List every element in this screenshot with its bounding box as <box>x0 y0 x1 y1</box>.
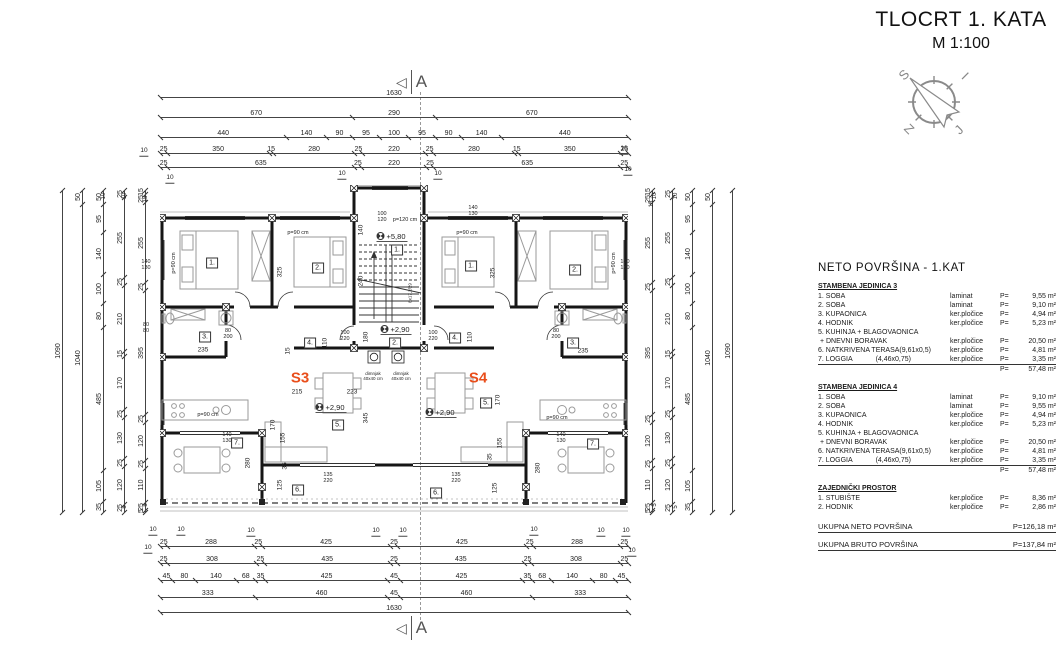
dim-segment: 130 <box>663 418 676 459</box>
flag-label: 10 <box>433 171 442 180</box>
dim-segment: 255 <box>663 198 676 278</box>
dim-segment: 350 <box>167 144 269 157</box>
dim-col-right-2: 252552521015170251302512025 <box>663 190 676 512</box>
dim-segment: 110 <box>643 468 656 503</box>
dim-segment: 105 <box>94 471 107 502</box>
dim-segment: 120 <box>643 423 656 461</box>
section-label: A <box>416 618 427 638</box>
dim-segment: 435 <box>264 554 390 567</box>
table-row: 4. HODNIKker.pločiceP=5,23 m² <box>818 420 1056 429</box>
flag-label: 10 <box>627 548 636 557</box>
dim-segment: 485 <box>94 327 107 470</box>
dim-segment: 460 <box>400 588 532 601</box>
dim-row-top-3: 44014090951009590140440 <box>160 128 628 141</box>
table-section-title: STAMBENA JEDINICA 4 <box>818 384 1056 391</box>
dim-segment: 120 <box>136 423 149 461</box>
dim-segment: 1090 <box>53 190 66 512</box>
section-triangle-icon: ◁ <box>396 75 407 89</box>
dim-row-top-5: 25635252202563525 <box>160 158 628 171</box>
dim-segment: 170 <box>663 357 676 410</box>
dim-segment: 140 <box>683 233 696 274</box>
dim-row-bottom-5: 1630 <box>160 603 628 616</box>
compass-letter-n: S <box>898 66 912 83</box>
dim-segment: 395 <box>136 291 149 415</box>
dim-col-left-4: 252552521015170251302512025 <box>115 190 128 512</box>
dim-segment: 1630 <box>160 88 628 101</box>
dim-segment: 210 <box>663 286 676 352</box>
table-row: + DNEVNI BORAVAKker.pločiceP=20,50 m² <box>818 438 1056 447</box>
dim-col-right-4: 501040 <box>703 190 716 512</box>
table-row: 3. KUPAONICAker.pločiceP=4,94 m² <box>818 310 1056 319</box>
compass-rose: S I Z J <box>898 66 970 138</box>
floor-plan-svg <box>160 185 628 512</box>
flag-label: 10 <box>621 528 630 537</box>
dim-segment: 308 <box>531 554 620 567</box>
dim-segment: 220 <box>362 144 426 157</box>
windows <box>161 187 627 467</box>
dim-segment: 290 <box>352 108 435 121</box>
dim-segment: 140 <box>196 571 236 584</box>
section-bar <box>411 616 412 640</box>
drawing-scale: M 1:100 <box>868 35 1054 53</box>
floor-plan <box>160 185 628 517</box>
dim-segment: 210 <box>115 286 128 352</box>
dim-segment: 395 <box>643 291 656 415</box>
dim-segment: 255 <box>136 203 149 283</box>
flag-label: 10 <box>398 528 407 537</box>
dim-col-left-1: 1090 <box>53 190 66 512</box>
table-row: 5. KUHINJA + BLAGOVAONICA <box>818 328 1056 337</box>
table-row: 4. HODNIKker.pločiceP=5,23 m² <box>818 319 1056 328</box>
table-row: 5. KUHINJA + BLAGOVAONICA <box>818 429 1056 438</box>
flag-label: 10 <box>246 528 255 537</box>
staircase <box>357 245 421 322</box>
dim-segment: 140 <box>94 233 107 274</box>
dim-segment: 440 <box>502 128 628 141</box>
dim-segment: 120 <box>663 466 676 504</box>
dim-segment: 350 <box>519 144 621 157</box>
area-table-heading: NETO POVRŠINA - 1.KAT <box>818 262 1056 274</box>
dim-segment: 1040 <box>703 205 716 512</box>
table-section-title: STAMBENA JEDINICA 3 <box>818 283 1056 290</box>
section-marker-bottom: ◁ A <box>396 616 427 640</box>
table-row: 6. NATKRIVENA TERASA(9,61x0,5)ker.pločic… <box>818 346 1056 355</box>
dim-col-left-2: 501040 <box>73 190 86 512</box>
dim-segment: 288 <box>534 537 621 550</box>
dim-segment: 1040 <box>73 205 86 512</box>
table-section-title: ZAJEDNIČKI PROSTOR <box>818 485 1056 492</box>
flag-label: 10 <box>176 527 185 536</box>
dim-segment: 435 <box>398 554 524 567</box>
table-total-row: UKUPNA NETO POVRŠINAP=126,18 m² <box>818 522 1056 533</box>
dim-segment: 110 <box>136 468 149 503</box>
flag-label: 10 <box>165 175 174 184</box>
table-sum-row: P=57,48 m² <box>818 365 1056 375</box>
table-row: 7. LOGGIA (4,46x0,75)ker.pločiceP=3,35 m… <box>818 456 1056 466</box>
dim-segment: 130 <box>115 418 128 459</box>
dim-segment: 140 <box>462 128 502 141</box>
dim-segment: 425 <box>398 537 526 550</box>
chimneys <box>368 351 404 363</box>
dim-segment: 90 <box>327 128 353 141</box>
dim-col-right-5: 1090 <box>723 190 736 512</box>
compass-letter-e: I <box>959 69 970 82</box>
compass-letter-s: J <box>951 122 966 137</box>
table-total-row: UKUPNA BRUTO POVRŠINAP=137,84 m² <box>818 540 1056 551</box>
dim-col-left-3: 50951401008048510535 <box>94 190 107 512</box>
dim-row-top-1: 1630 <box>160 88 628 101</box>
table-row: 2. HODNIKker.pločiceP=2,86 m² <box>818 503 1056 512</box>
dim-segment: 220 <box>362 158 427 171</box>
dim-segment: 280 <box>273 144 354 157</box>
dim-segment: 425 <box>266 571 388 584</box>
dim-segment: 440 <box>160 128 286 141</box>
dim-segment: 288 <box>168 537 255 550</box>
dim-row-bottom-4: 33346045460333 <box>160 588 628 601</box>
dim-segment: 100 <box>380 128 409 141</box>
dim-segment: 670 <box>436 108 628 121</box>
dim-segment: 333 <box>532 588 628 601</box>
table-row: + DNEVNI BORAVAKker.pločiceP=20,50 m² <box>818 337 1056 346</box>
table-row: 1. STUBIŠTEker.pločiceP=8,36 m² <box>818 494 1056 503</box>
dim-segment: 120 <box>115 466 128 504</box>
walls <box>162 188 626 503</box>
flag-label: 10 <box>337 171 346 180</box>
flag-label: 10 <box>529 527 538 536</box>
dim-row-bottom-2: 2530825435254352530825 <box>160 554 628 567</box>
title-block: TLOCRT 1. KATA M 1:100 <box>868 8 1054 53</box>
dim-segment: 425 <box>262 537 390 550</box>
table-row: 3. KUPAONICAker.pločiceP=4,94 m² <box>818 411 1056 420</box>
dim-segment: 308 <box>167 554 256 567</box>
flag-label: 10 <box>148 527 157 536</box>
dim-segment: 140 <box>286 128 326 141</box>
flag-label: 10 <box>143 545 152 554</box>
dim-segment: 635 <box>167 158 354 171</box>
table-row: 1. SOBAlaminatP=9,10 m² <box>818 393 1056 402</box>
drawing-title: TLOCRT 1. KATA <box>868 8 1054 32</box>
dim-row-top-2: 670290670 <box>160 108 628 121</box>
dim-col-right-1: 1525255253952512025110255 <box>643 190 656 512</box>
dim-segment: 425 <box>400 571 522 584</box>
dim-segment: 635 <box>434 158 621 171</box>
dim-col-right-3: 50951401008048510535 <box>683 190 696 512</box>
dim-segment: 255 <box>115 198 128 278</box>
door-swings <box>226 292 562 340</box>
area-table: NETO POVRŠINA - 1.KAT STAMBENA JEDINICA … <box>818 262 1056 551</box>
terrace-edge <box>160 499 626 505</box>
compass-letter-w: Z <box>901 121 917 137</box>
table-row: 6. NATKRIVENA TERASA(9,61x0,5)ker.pločic… <box>818 447 1056 456</box>
table-row: 2. SOBAlaminatP=9,10 m² <box>818 301 1056 310</box>
dim-segment: 255 <box>643 203 656 283</box>
section-triangle-icon: ◁ <box>396 621 407 635</box>
table-row: 2. SOBAlaminatP=9,55 m² <box>818 402 1056 411</box>
dim-segment: 670 <box>160 108 352 121</box>
dim-row-bottom-1: 2528825425254252528825 <box>160 537 628 550</box>
dim-segment: 333 <box>160 588 256 601</box>
flag-label: 10 <box>139 148 148 157</box>
dim-segment: 105 <box>683 471 696 502</box>
dim-segment: 170 <box>115 357 128 410</box>
dim-segment: 280 <box>433 144 514 157</box>
area-table-body: STAMBENA JEDINICA 31. SOBAlaminatP=9,55 … <box>818 283 1056 551</box>
drawing-sheet: TLOCRT 1. KATA M 1:100 S I Z J NETO POVR… <box>0 0 1056 648</box>
dim-segment: 485 <box>683 327 696 470</box>
dim-segment: 1630 <box>160 603 628 616</box>
flag-label: 10 <box>371 528 380 537</box>
dim-row-bottom-3: 458014068354254542535681408045 <box>160 571 628 584</box>
dim-segment: 140 <box>552 571 592 584</box>
dim-segment: 460 <box>256 588 388 601</box>
dim-segment: 1090 <box>723 190 736 512</box>
flag-label: 10 <box>596 528 605 537</box>
table-row: 1. SOBAlaminatP=9,55 m² <box>818 292 1056 301</box>
dim-col-left-5: 1525255253952512025110255 <box>136 190 149 512</box>
dim-row-top-4: 253501528025220252801535025 <box>160 144 628 157</box>
table-row: 7. LOGGIA (4,46x0,75)ker.pločiceP=3,35 m… <box>818 355 1056 365</box>
table-sum-row: P=57,48 m² <box>818 466 1056 476</box>
